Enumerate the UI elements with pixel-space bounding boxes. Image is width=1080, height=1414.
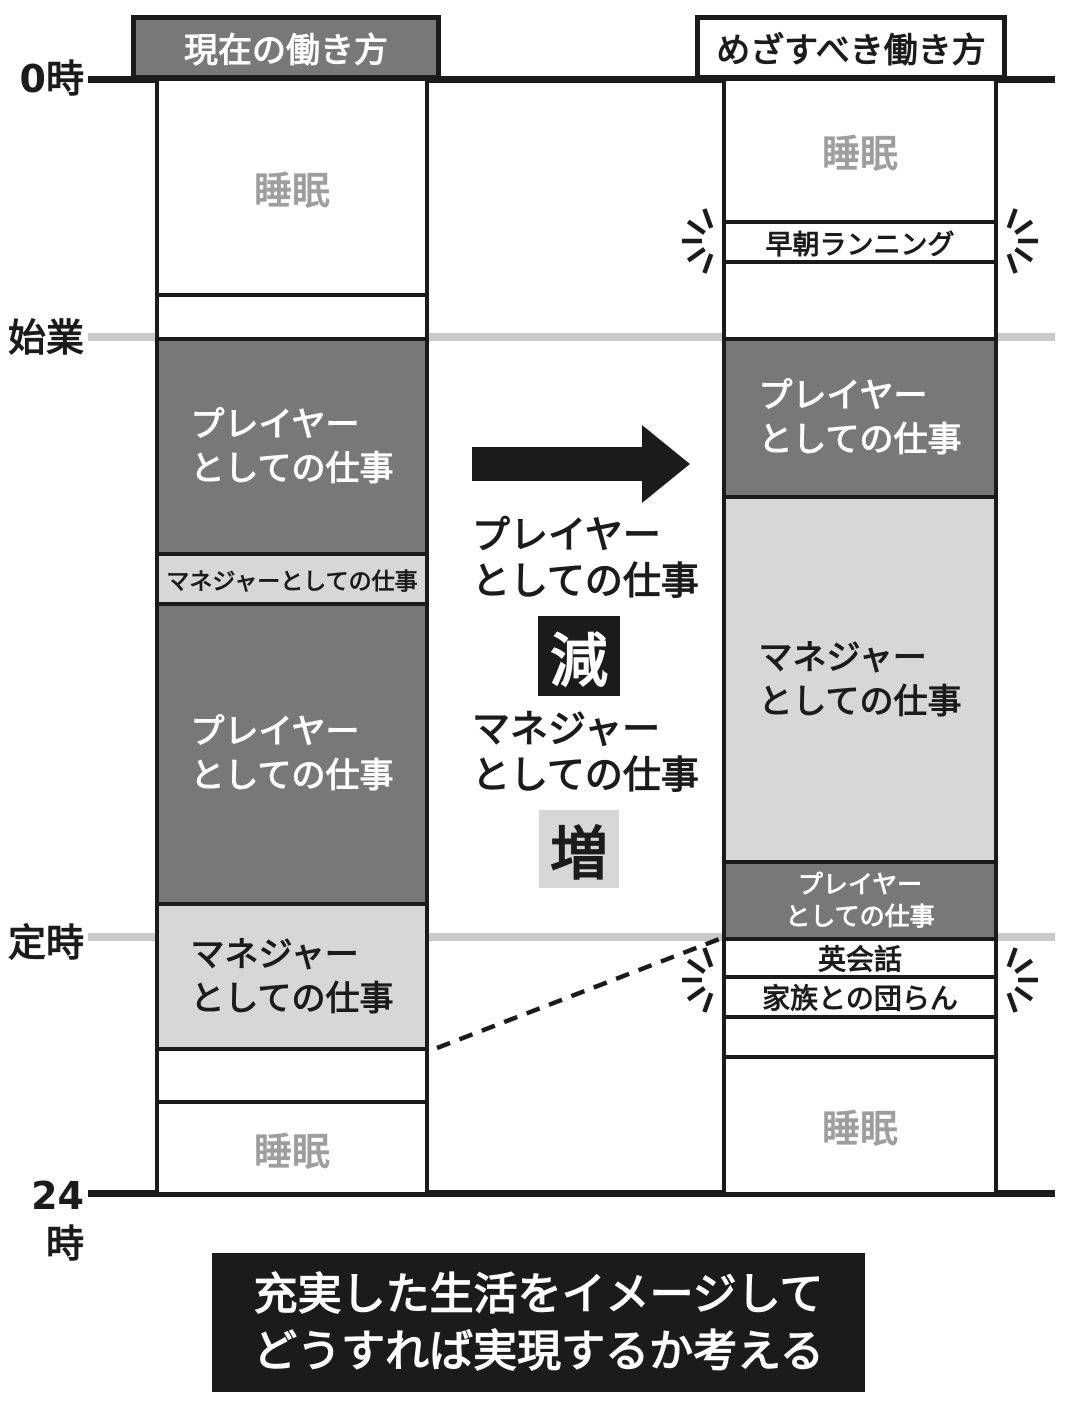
current-player-2-label: プレイヤー としての仕事 — [191, 710, 394, 798]
header-current-label: 現在の働き方 — [184, 23, 388, 72]
current-player-1-block: プレイヤー としての仕事 — [155, 337, 429, 556]
emphasis-burst-icon — [674, 203, 722, 279]
decrease-badge: 減 — [538, 616, 620, 696]
footer-message: 充実した生活をイメージして どうすれば実現するか考える — [212, 1253, 865, 1392]
ideal-family-block: 家族との団らん — [722, 975, 998, 1019]
current-gap-morning-block — [155, 293, 429, 341]
current-manager-mid-label: マネジャーとしての仕事 — [166, 562, 417, 596]
ideal-morning-run-block: 早朝ランニング — [722, 220, 998, 264]
ideal-sleep-morning-label: 睡眠 — [822, 123, 898, 178]
axis-label-24h: 24時 — [0, 1172, 84, 1220]
header-ideal-label: めざすべき働き方 — [716, 23, 986, 72]
current-manager-evening-label: マネジャー としての仕事 — [191, 933, 394, 1021]
workstyle-comparison-diagram: 0時 始業 定時 24時 現在の働き方 めざすべき働き方 睡眠 プレイヤー とし… — [0, 0, 1080, 1414]
middle-player-label: プレイヤー としての仕事 — [472, 512, 699, 604]
ideal-manager-day-label: マネジャー としての仕事 — [759, 636, 962, 724]
ideal-english-label: 英会話 — [818, 938, 902, 978]
current-sleep-night-block: 睡眠 — [155, 1100, 429, 1196]
axis-label-0h: 0時 — [0, 55, 84, 103]
ideal-player-late-label: プレイヤー としての仕事 — [785, 869, 934, 933]
ideal-player-late-block: プレイヤー としての仕事 — [722, 860, 998, 941]
current-sleep-night-label: 睡眠 — [254, 1121, 330, 1176]
ideal-gap-evening-block — [722, 1015, 998, 1059]
middle-manager-label: マネジャー としての仕事 — [472, 706, 699, 798]
current-manager-evening-block: マネジャー としての仕事 — [155, 902, 429, 1051]
header-ideal-workstyle: めざすべき働き方 — [695, 15, 1007, 80]
ideal-player-morning-block: プレイヤー としての仕事 — [722, 337, 998, 499]
ideal-player-morning-label: プレイヤー としての仕事 — [759, 374, 962, 462]
current-player-2-block: プレイヤー としての仕事 — [155, 602, 429, 906]
ideal-sleep-night-label: 睡眠 — [822, 1098, 898, 1153]
current-sleep-morning-label: 睡眠 — [254, 160, 330, 215]
ideal-manager-day-block: マネジャー としての仕事 — [722, 495, 998, 864]
current-sleep-morning-block: 睡眠 — [155, 77, 429, 297]
ideal-sleep-night-block: 睡眠 — [722, 1055, 998, 1196]
header-current-workstyle: 現在の働き方 — [131, 15, 441, 80]
current-player-1-label: プレイヤー としての仕事 — [191, 403, 394, 491]
axis-label-work-start: 始業 — [0, 314, 84, 362]
ideal-family-label: 家族との団らん — [762, 977, 958, 1017]
axis-label-regular-end: 定時 — [0, 919, 84, 967]
ideal-gap-morning-block — [722, 260, 998, 341]
current-manager-mid-block: マネジャーとしての仕事 — [155, 552, 429, 606]
current-gap-evening-block — [155, 1047, 429, 1104]
ideal-sleep-morning-block: 睡眠 — [722, 77, 998, 224]
ideal-morning-run-label: 早朝ランニング — [766, 223, 955, 262]
transition-arrow — [472, 447, 642, 481]
ideal-english-block: 英会話 — [722, 937, 998, 979]
increase-badge: 増 — [539, 810, 619, 888]
emphasis-burst-icon — [998, 942, 1046, 1018]
emphasis-burst-icon — [674, 942, 722, 1018]
transition-arrow-head-icon — [642, 425, 690, 503]
emphasis-burst-icon — [998, 203, 1046, 279]
